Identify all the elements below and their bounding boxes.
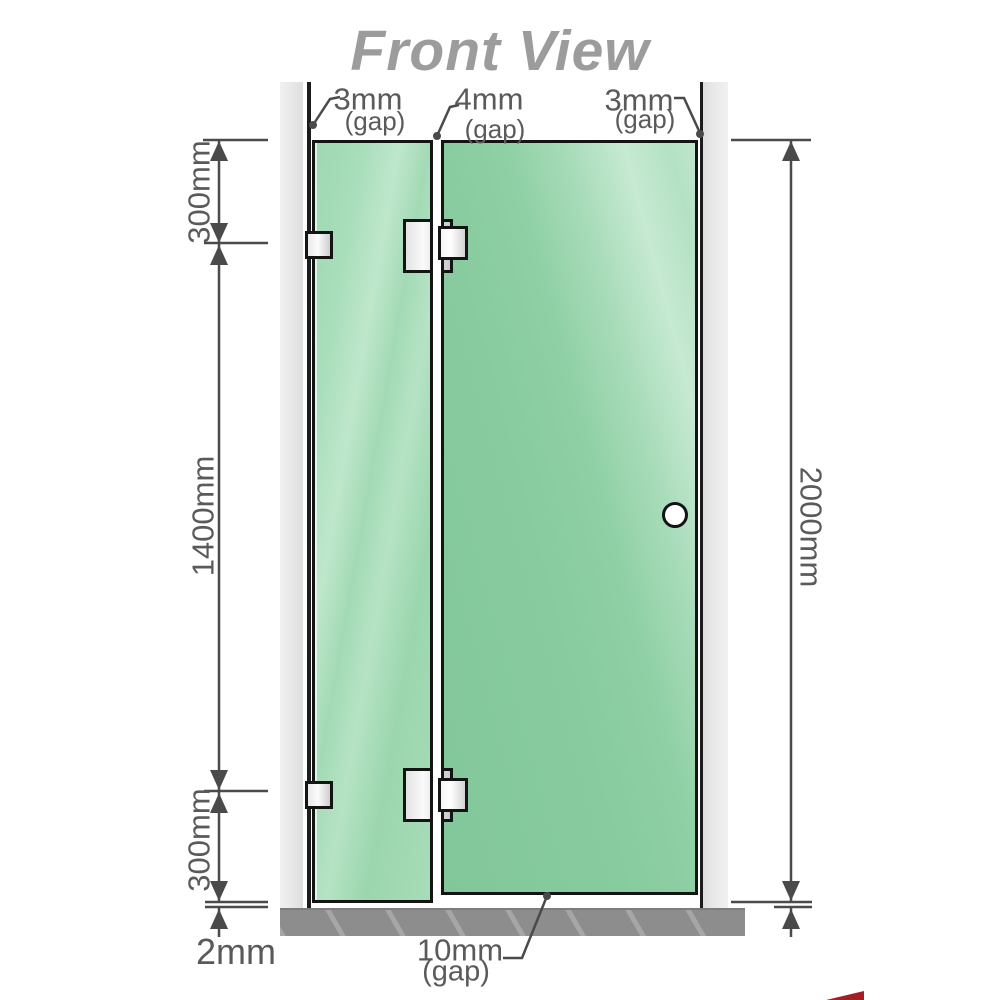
dim-left-bottom: 300mm xyxy=(184,788,215,891)
gap-top-left-unit: (gap) xyxy=(345,108,406,134)
door-knob xyxy=(662,502,688,528)
hinge-bottom-knuckle xyxy=(438,778,468,812)
gap-top-right-unit: (gap) xyxy=(615,106,676,132)
dim-right-height: 2000mm xyxy=(796,467,827,588)
dim-left-top: 300mm xyxy=(184,140,215,243)
hinge-top-knuckle xyxy=(438,226,468,260)
wall-line-right xyxy=(700,82,704,908)
diagram-title: Front View xyxy=(350,18,649,84)
dim-floor-clearance: 2mm xyxy=(196,934,276,970)
dim-left-middle: 1400mm xyxy=(188,456,219,577)
wall-bracket-bottom xyxy=(305,781,333,809)
gap-bottom-unit: (gap) xyxy=(422,958,490,987)
wall-channel-left xyxy=(280,82,303,908)
corner-watermark xyxy=(826,991,864,1000)
shower-base xyxy=(280,908,745,936)
wall-channel-right xyxy=(703,82,728,908)
gap-top-middle-unit: (gap) xyxy=(465,116,526,142)
shower-screen-front-view-diagram: Front View xyxy=(0,0,1000,1000)
wall-bracket-top xyxy=(305,231,333,259)
door-glass-panel xyxy=(441,140,698,895)
gap-top-middle-value: 4mm xyxy=(455,84,524,115)
